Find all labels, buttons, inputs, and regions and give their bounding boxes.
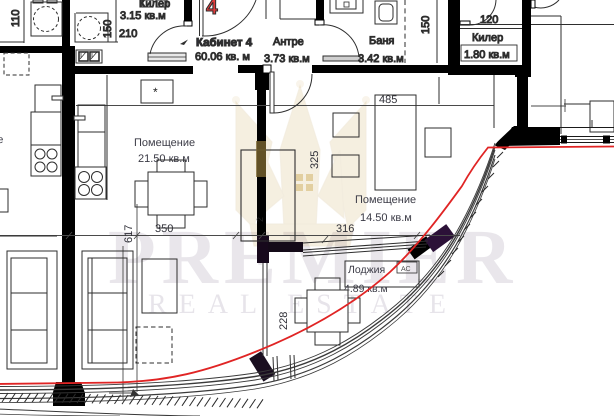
svg-text:110: 110 <box>10 9 22 27</box>
svg-text:325: 325 <box>309 151 321 169</box>
svg-text:Помещение: Помещение <box>355 194 416 206</box>
svg-text:617: 617 <box>123 225 135 243</box>
svg-text:1.80 кв.м: 1.80 кв.м <box>464 49 510 61</box>
svg-text:Килер: Килер <box>139 0 170 10</box>
svg-text:485: 485 <box>379 94 397 106</box>
svg-text:4: 4 <box>206 0 218 19</box>
svg-text:*: * <box>153 85 158 99</box>
svg-text:21.50 кв.м: 21.50 кв.м <box>138 153 190 165</box>
svg-text:3.73 кв.м: 3.73 кв.м <box>264 53 310 65</box>
svg-text:Баня: Баня <box>369 35 394 47</box>
svg-text:150: 150 <box>102 20 114 38</box>
svg-text:14.50 кв.м: 14.50 кв.м <box>360 212 412 224</box>
svg-text:Кабинет 4: Кабинет 4 <box>196 37 253 49</box>
svg-text:228: 228 <box>278 312 290 330</box>
svg-text:щение: щение <box>0 134 3 146</box>
svg-text:Килер: Килер <box>472 32 503 44</box>
svg-text:350: 350 <box>155 223 173 235</box>
svg-text:АС: АС <box>401 266 411 273</box>
svg-text:210: 210 <box>119 28 137 40</box>
svg-text:316: 316 <box>336 223 354 235</box>
svg-text:120: 120 <box>480 14 498 26</box>
svg-text:2: 2 <box>255 217 265 222</box>
svg-text:3.42 кв.м: 3.42 кв.м <box>358 53 404 65</box>
svg-text:Помещение: Помещение <box>134 137 195 149</box>
svg-text:150: 150 <box>420 16 432 34</box>
svg-text:3.15 кв.м: 3.15 кв.м <box>120 10 166 22</box>
svg-text:Лоджия: Лоджия <box>348 264 385 276</box>
svg-text:4.89 кв.м: 4.89 кв.м <box>344 283 388 295</box>
svg-text:Антре: Антре <box>273 36 304 48</box>
svg-text:60.06 кв. м: 60.06 кв. м <box>195 51 250 63</box>
